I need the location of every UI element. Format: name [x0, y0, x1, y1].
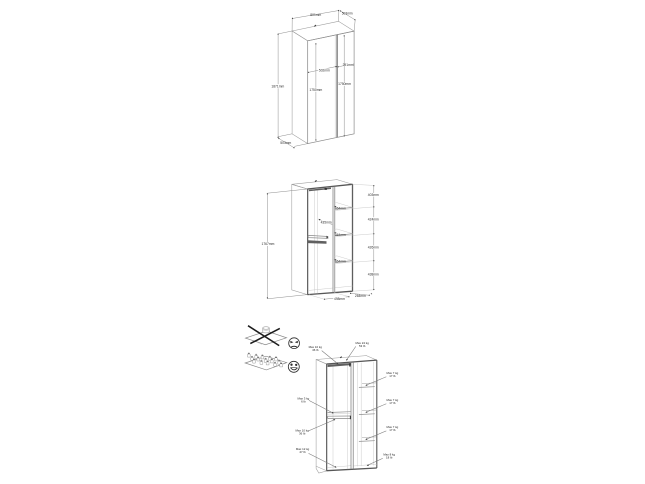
- svg-text:503mm: 503mm: [342, 11, 353, 15]
- svg-text:464mm: 464mm: [335, 260, 346, 264]
- svg-text:264mm: 264mm: [355, 294, 366, 298]
- svg-text:403mm: 403mm: [368, 193, 379, 197]
- svg-text:1871mm: 1871mm: [271, 85, 284, 89]
- svg-text:1750mm: 1750mm: [309, 88, 322, 92]
- svg-text:438mm: 438mm: [368, 272, 379, 276]
- svg-text:464mm: 464mm: [335, 207, 346, 211]
- svg-text:46 lb: 46 lb: [312, 348, 319, 352]
- svg-text:17 lb: 17 lb: [389, 374, 396, 378]
- svg-text:17 lb: 17 lb: [389, 401, 396, 405]
- svg-text:6 lb: 6 lb: [301, 399, 306, 403]
- svg-text:53 lb: 53 lb: [359, 344, 366, 348]
- svg-text:426mm: 426mm: [368, 246, 379, 250]
- svg-text:502mm: 502mm: [319, 69, 330, 73]
- svg-text:503mm: 503mm: [280, 141, 291, 145]
- svg-text:36 lb: 36 lb: [299, 431, 306, 435]
- svg-text:18 lb: 18 lb: [386, 455, 393, 459]
- svg-text:1750mm: 1750mm: [338, 82, 351, 86]
- svg-text:1767mm: 1767mm: [261, 242, 274, 246]
- svg-text:498mm: 498mm: [334, 297, 345, 301]
- svg-text:27 lb: 27 lb: [299, 450, 306, 454]
- svg-text:464mm: 464mm: [335, 233, 346, 237]
- svg-text:435mm: 435mm: [321, 220, 332, 224]
- svg-text:424mm: 424mm: [368, 217, 379, 221]
- svg-text:17 lb: 17 lb: [389, 428, 396, 432]
- svg-text:801mm: 801mm: [310, 13, 321, 17]
